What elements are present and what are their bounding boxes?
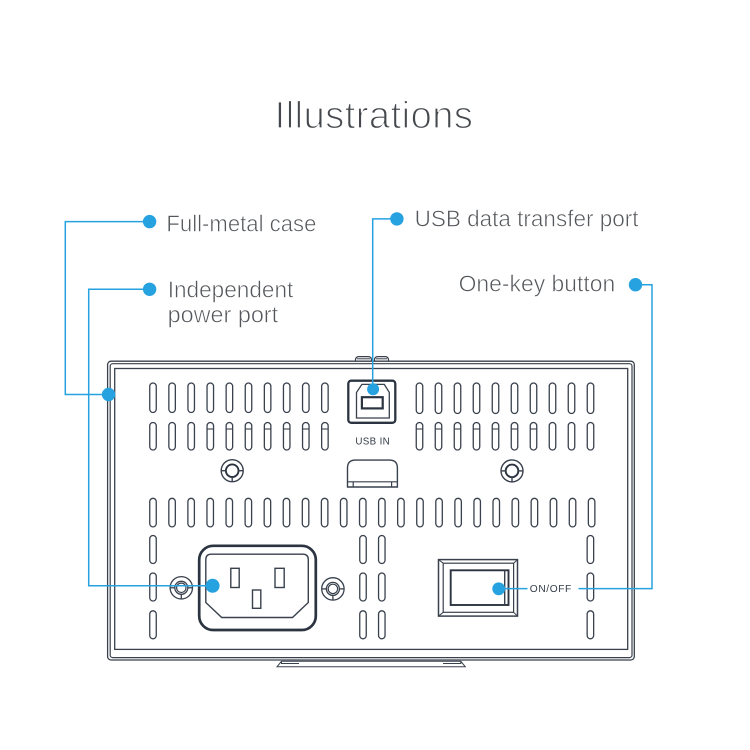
svg-text:Illustrations: Illustrations	[275, 95, 474, 137]
svg-text:ON/OFF: ON/OFF	[530, 584, 572, 595]
svg-text:Independent: Independent	[168, 276, 294, 302]
svg-text:USB data transfer port: USB data transfer port	[415, 206, 639, 232]
svg-text:One-key button: One-key button	[459, 270, 616, 296]
svg-text:USB IN: USB IN	[355, 436, 390, 447]
svg-text:Full-metal case: Full-metal case	[166, 210, 316, 236]
svg-text:power port: power port	[168, 302, 279, 328]
